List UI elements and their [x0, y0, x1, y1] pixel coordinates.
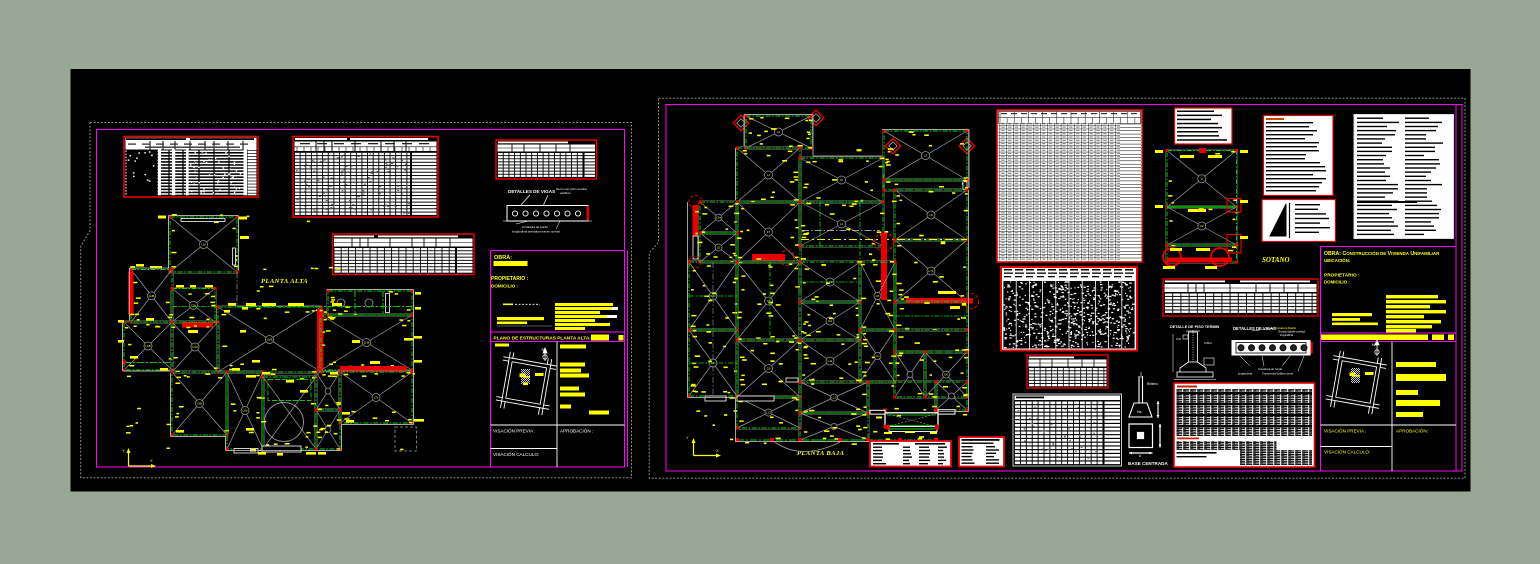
svg-text:PROPIETARIO :: PROPIETARIO :	[491, 276, 528, 282]
svg-text:L5a: L5a	[716, 216, 721, 220]
svg-text:PLANTA BAJA: PLANTA BAJA	[797, 450, 845, 457]
svg-text:L3: L3	[924, 154, 928, 158]
svg-text:U: U	[1201, 177, 1203, 181]
svg-text:Armadura Radial: Armadura Radial	[1275, 326, 1296, 330]
svg-text:L7: L7	[767, 230, 771, 234]
svg-text:L5: L5	[717, 246, 721, 250]
svg-text:longitudinal: longitudinal	[1238, 372, 1253, 376]
svg-text:0.05x2: 0.05x2	[1204, 341, 1212, 345]
svg-text:N: N	[1372, 342, 1375, 347]
svg-text:Transversal (piliba comb): Transversal (piliba comb)	[1262, 372, 1293, 376]
svg-text:PLANTA ALTA: PLANTA ALTA	[261, 278, 308, 285]
svg-text:L2: L2	[777, 130, 781, 134]
svg-text:L6: L6	[929, 213, 933, 217]
svg-text:X: X	[716, 448, 719, 453]
svg-text:DETALLE DE PISO TERMIN: DETALLE DE PISO TERMIN	[1170, 325, 1220, 329]
svg-text:N: N	[542, 347, 545, 352]
svg-text:DETALLES DE VIGAS: DETALLES DE VIGAS	[508, 189, 555, 194]
svg-text:U2: U2	[1200, 224, 1204, 228]
svg-text:L4: L4	[840, 222, 844, 226]
svg-text:OBRA:: OBRA:	[494, 255, 512, 261]
svg-text:LM: LM	[201, 243, 206, 247]
svg-text:APROBACIÓN:: APROBACIÓN:	[1396, 428, 1428, 434]
svg-text:L13: L13	[831, 396, 836, 400]
svg-text:Armadura de borde: Armadura de borde	[1258, 367, 1283, 371]
svg-text:L7b: L7b	[928, 269, 933, 273]
svg-text:longitudinal: longitudinal	[1280, 333, 1294, 337]
svg-text:C10: C10	[192, 345, 198, 349]
svg-text:C9: C9	[374, 396, 378, 400]
svg-text:Y: Y	[122, 448, 125, 453]
svg-text:C6: C6	[767, 367, 771, 371]
svg-text:Techsal (jabble overlay): Techsal (jabble overlay)	[1278, 330, 1305, 334]
svg-text:X: X	[150, 458, 153, 463]
svg-text:VISACIÓN PREVIA :: VISACIÓN PREVIA :	[1324, 428, 1366, 434]
svg-text:DOMICILIO :: DOMICILIO :	[1324, 280, 1350, 285]
svg-text:LH8: LH8	[364, 341, 370, 345]
svg-text:BASE CENTRADA: BASE CENTRADA	[1128, 461, 1168, 466]
svg-text:C8b: C8b	[197, 402, 203, 406]
svg-text:L1: L1	[767, 173, 771, 177]
svg-text:0.20: 0.20	[1176, 337, 1182, 341]
svg-text:PLANO DE ESTRUCTURAS PLANTA AL: PLANO DE ESTRUCTURAS PLANTA ALTA:	[494, 336, 592, 342]
svg-text:L1B: L1B	[145, 344, 150, 348]
svg-text:C4: C4	[828, 319, 832, 323]
svg-text:VISACIÓN PREVIA :: VISACIÓN PREVIA :	[493, 428, 535, 434]
svg-text:Relleno: Relleno	[1147, 382, 1158, 386]
svg-text:DOMICILIO :: DOMICILIO :	[491, 284, 519, 289]
svg-text:U6: U6	[944, 373, 948, 377]
svg-text:PROPIETARIO :: PROPIETARIO :	[1324, 273, 1360, 279]
svg-text:LB: LB	[876, 294, 880, 298]
svg-text:longitudinal armadura transv: longitudinal armadura transv normal	[512, 230, 560, 234]
svg-text:UBICACIÓN:: UBICACIÓN:	[1324, 258, 1351, 263]
svg-text:VISACIÓN CALCULO:: VISACIÓN CALCULO:	[493, 451, 539, 457]
svg-text:Y: Y	[686, 435, 689, 440]
svg-text:APROBACIÓN :: APROBACIÓN :	[560, 428, 593, 434]
svg-text:L11: L11	[828, 359, 833, 363]
svg-text:L12: L12	[766, 411, 771, 415]
svg-text:LM6: LM6	[267, 338, 273, 342]
svg-text:Armadura de borde: Armadura de borde	[522, 225, 548, 229]
svg-text:SOTANO: SOTANO	[1262, 256, 1290, 264]
svg-text:Ha: Ha	[1137, 410, 1141, 414]
svg-text:VISACIÓN CALCULO:: VISACIÓN CALCULO:	[1324, 449, 1370, 455]
svg-text:L4b: L4b	[242, 409, 247, 413]
svg-text:estribos: estribos	[560, 191, 571, 195]
svg-text:LHB: LHB	[149, 294, 155, 298]
